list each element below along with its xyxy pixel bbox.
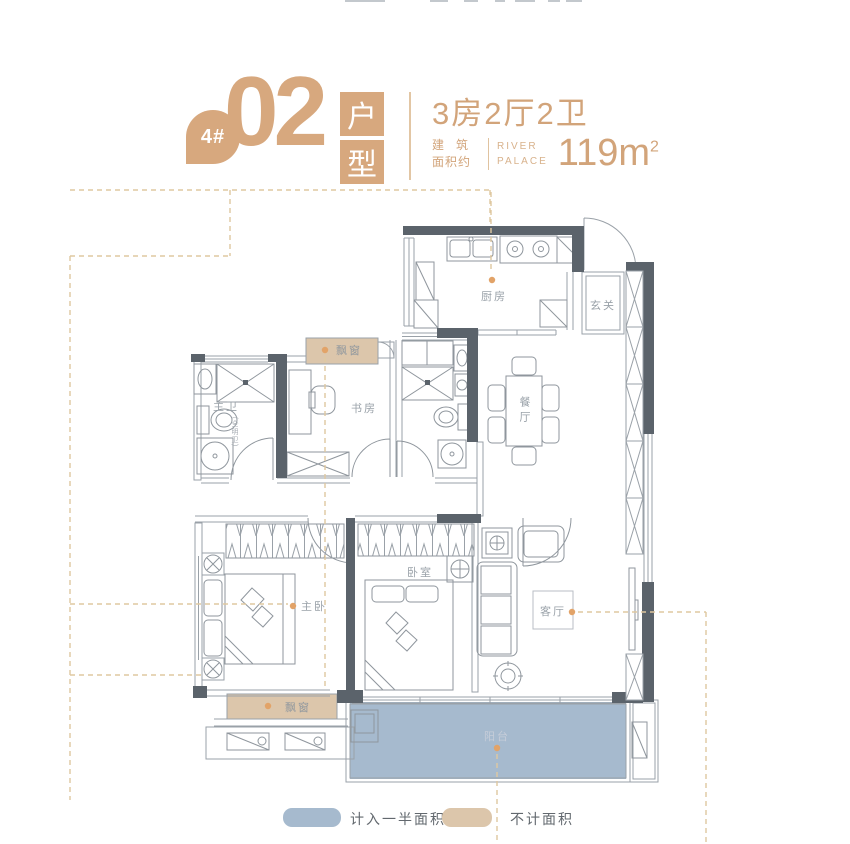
- balcony-marker-dot: [494, 745, 500, 751]
- walls-dark: [191, 226, 654, 703]
- furniture: [194, 236, 647, 758]
- room-label-bedroom: 卧室: [407, 564, 433, 580]
- room-label-bay-window-top: 飘窗: [336, 342, 362, 358]
- living-marker-dot: [569, 609, 575, 615]
- master-bedroom-marker-dot: [290, 603, 296, 609]
- kitchen-marker-dot: [489, 277, 495, 283]
- floorplan-drawing: [0, 0, 850, 844]
- room-label-balcony: 阳台: [484, 728, 510, 744]
- room-label-foyer: 玄关: [590, 297, 616, 313]
- legend-swatch-not-counted: [442, 808, 492, 827]
- legend-label-half-area: 计入一半面积: [350, 809, 446, 829]
- room-label-bay-window-bottom: 飘窗: [285, 699, 311, 715]
- legend-swatch-half-area: [283, 808, 341, 827]
- bay-top-marker-dot: [322, 347, 328, 353]
- bay-window-bottom-fill: [227, 694, 337, 719]
- room-label-master-bath: 主卫: [213, 398, 239, 414]
- room-label-living: 客厅: [540, 603, 566, 619]
- room-label-master-bath-note: (全明卫): [229, 417, 239, 448]
- room-label-kitchen: 厨房: [481, 288, 507, 304]
- room-label-dining: 餐厅: [516, 396, 532, 426]
- bay-bottom-marker-dot: [265, 703, 271, 709]
- room-label-master-bedroom: 主卧: [301, 598, 327, 614]
- room-label-study: 书房: [351, 400, 377, 416]
- legend-label-not-counted: 不计面积: [510, 809, 574, 829]
